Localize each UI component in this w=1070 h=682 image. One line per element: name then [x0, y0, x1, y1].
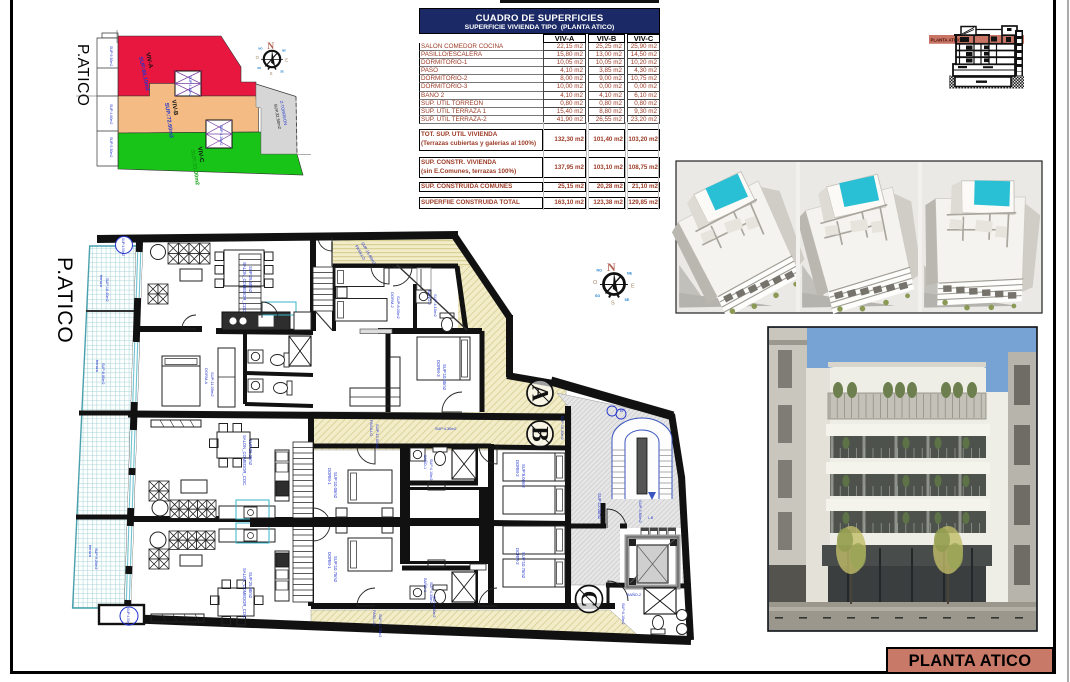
- svg-text:NO: NO: [597, 269, 603, 273]
- svg-text:SUP:1.50m2: SUP:1.50m2: [121, 238, 125, 256]
- svg-text:SUP:4.00m2: SUP:4.00m2: [126, 608, 130, 626]
- svg-text:terraza: terraza: [88, 545, 92, 558]
- svg-text:SE: SE: [625, 298, 630, 302]
- svg-text:SALON_COMEDOR_COC.: SALON_COMEDOR_COC.: [242, 435, 247, 486]
- svg-text:O: O: [256, 55, 260, 60]
- svg-text:SUP:10.00m2: SUP:10.00m2: [442, 364, 447, 391]
- svg-text:SUP:5.30m2: SUP:5.30m2: [109, 137, 113, 157]
- svg-text:C: C: [577, 591, 602, 608]
- svg-text:SUP:8.80m2: SUP:8.80m2: [101, 363, 105, 385]
- svg-text:SE: SE: [280, 69, 284, 73]
- svg-text:SUP:4.10m2: SUP:4.10m2: [429, 459, 433, 481]
- svg-text:NE: NE: [282, 49, 286, 53]
- svg-text:DORM-3: DORM-3: [436, 360, 441, 377]
- svg-text:SUP:25.55m2: SUP:25.55m2: [248, 266, 253, 293]
- svg-text:PLANTA ATICO: PLANTA ATICO: [931, 38, 963, 43]
- svg-text:PASILLO: PASILLO: [372, 610, 376, 626]
- svg-text:SUP:18.40m2: SUP:18.40m2: [105, 278, 109, 302]
- svg-text:terraza: terraza: [95, 360, 99, 373]
- svg-text:P.ATICO: P.ATICO: [74, 44, 91, 106]
- svg-text:P.ATICO: P.ATICO: [53, 257, 76, 344]
- svg-text:SUP:12.00m2: SUP:12.00m2: [597, 493, 602, 520]
- svg-text:BAÑO-1: BAÑO-1: [423, 455, 428, 469]
- svg-text:SALON_COMEDOR_COC.: SALON_COMEDOR_COC.: [242, 262, 247, 313]
- svg-text:DORM-2: DORM-2: [515, 548, 520, 565]
- svg-text:E: E: [285, 58, 288, 63]
- svg-text:SUP:3.80m2: SUP:3.80m2: [638, 500, 643, 523]
- svg-text:DORM-2: DORM-2: [515, 460, 520, 477]
- svg-text:S: S: [611, 301, 615, 307]
- svg-text:SUP:10.05m2: SUP:10.05m2: [333, 472, 338, 499]
- svg-text:L.B: L.B: [648, 516, 654, 520]
- svg-text:SUP:4.20m2: SUP:4.20m2: [219, 125, 223, 145]
- svg-text:NE: NE: [627, 272, 633, 276]
- svg-text:SUP:4.30m2: SUP:4.30m2: [435, 427, 457, 431]
- svg-text:SUP:11.75m2: SUP:11.75m2: [378, 614, 382, 637]
- svg-text:BAÑO-2: BAÑO-2: [427, 290, 432, 306]
- svg-text:B: B: [528, 426, 553, 441]
- svg-text:SUP:4.20m2: SUP:4.20m2: [188, 76, 192, 96]
- svg-text:SUP:8.00m2: SUP:8.00m2: [396, 296, 401, 319]
- svg-text:BAÑO-1: BAÑO-1: [423, 578, 428, 592]
- svg-text:NO: NO: [258, 46, 263, 50]
- svg-text:SUP:4.60m2: SUP:4.60m2: [109, 104, 113, 124]
- svg-text:E: E: [631, 284, 635, 290]
- svg-text:SUP:6.10m2: SUP:6.10m2: [621, 603, 625, 625]
- svg-text:SUP:10.75m2: SUP:10.75m2: [521, 552, 526, 579]
- svg-text:S: S: [270, 71, 273, 76]
- svg-text:DORM-1: DORM-1: [327, 552, 332, 569]
- svg-text:SUP:13.00m2: SUP:13.00m2: [375, 424, 380, 450]
- svg-text:PASILLO: PASILLO: [369, 420, 374, 436]
- svg-text:SUP:10.30m2: SUP:10.30m2: [560, 416, 564, 440]
- svg-text:A: A: [528, 385, 553, 402]
- svg-text:SUP:4.10m2: SUP:4.10m2: [433, 294, 438, 317]
- svg-text:terraza: terraza: [99, 275, 103, 288]
- svg-text:SUP:25.25m2: SUP:25.25m2: [248, 439, 253, 466]
- svg-text:SUP:9.30m2: SUP:9.30m2: [109, 46, 113, 66]
- svg-text:SUP:4.10m2: SUP:4.10m2: [432, 596, 436, 618]
- svg-text:SUP:9.00m2: SUP:9.00m2: [521, 464, 526, 488]
- svg-text:SO: SO: [257, 66, 262, 70]
- svg-text:N: N: [607, 260, 616, 274]
- svg-text:SUP:9.20m2: SUP:9.20m2: [94, 548, 98, 570]
- svg-text:SALON_COMEDOR_COC.: SALON_COMEDOR_COC.: [242, 568, 247, 619]
- svg-text:SUP:25.90m2: SUP:25.90m2: [248, 572, 253, 599]
- svg-text:O: O: [593, 280, 598, 286]
- svg-text:DORM-1: DORM-1: [327, 468, 332, 485]
- svg-text:Bº: Bº: [620, 408, 625, 413]
- svg-text:SO: SO: [595, 294, 600, 298]
- svg-text:DORM-2: DORM-2: [390, 292, 395, 309]
- svg-text:BAÑO-2: BAÑO-2: [627, 592, 641, 597]
- svg-text:SUP:11.05m2: SUP:11.05m2: [210, 372, 215, 397]
- svg-text:SUP:10.75m2: SUP:10.75m2: [333, 556, 338, 583]
- svg-text:DORM-A: DORM-A: [204, 368, 209, 385]
